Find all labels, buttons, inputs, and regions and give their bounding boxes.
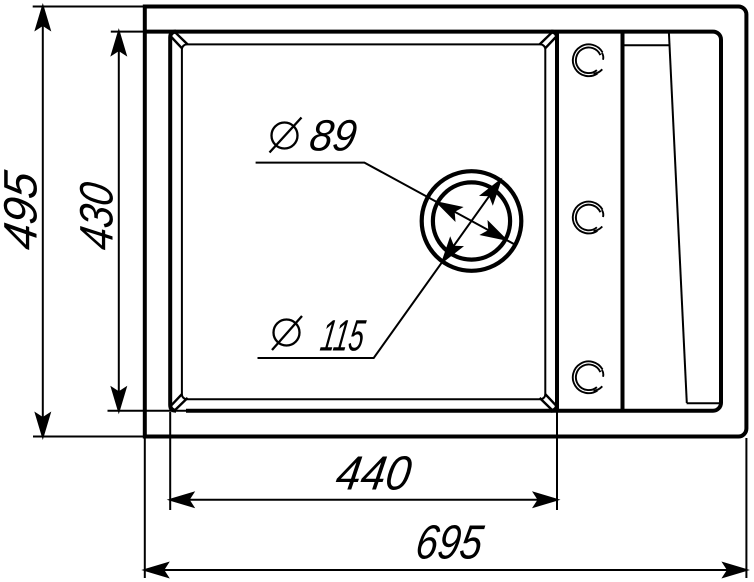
svg-text:440: 440 xyxy=(333,447,416,501)
svg-text:115: 115 xyxy=(317,312,368,361)
svg-text:430: 430 xyxy=(71,179,124,253)
svg-text:495: 495 xyxy=(0,167,47,253)
svg-text:89: 89 xyxy=(306,112,360,161)
svg-text:695: 695 xyxy=(412,516,487,570)
